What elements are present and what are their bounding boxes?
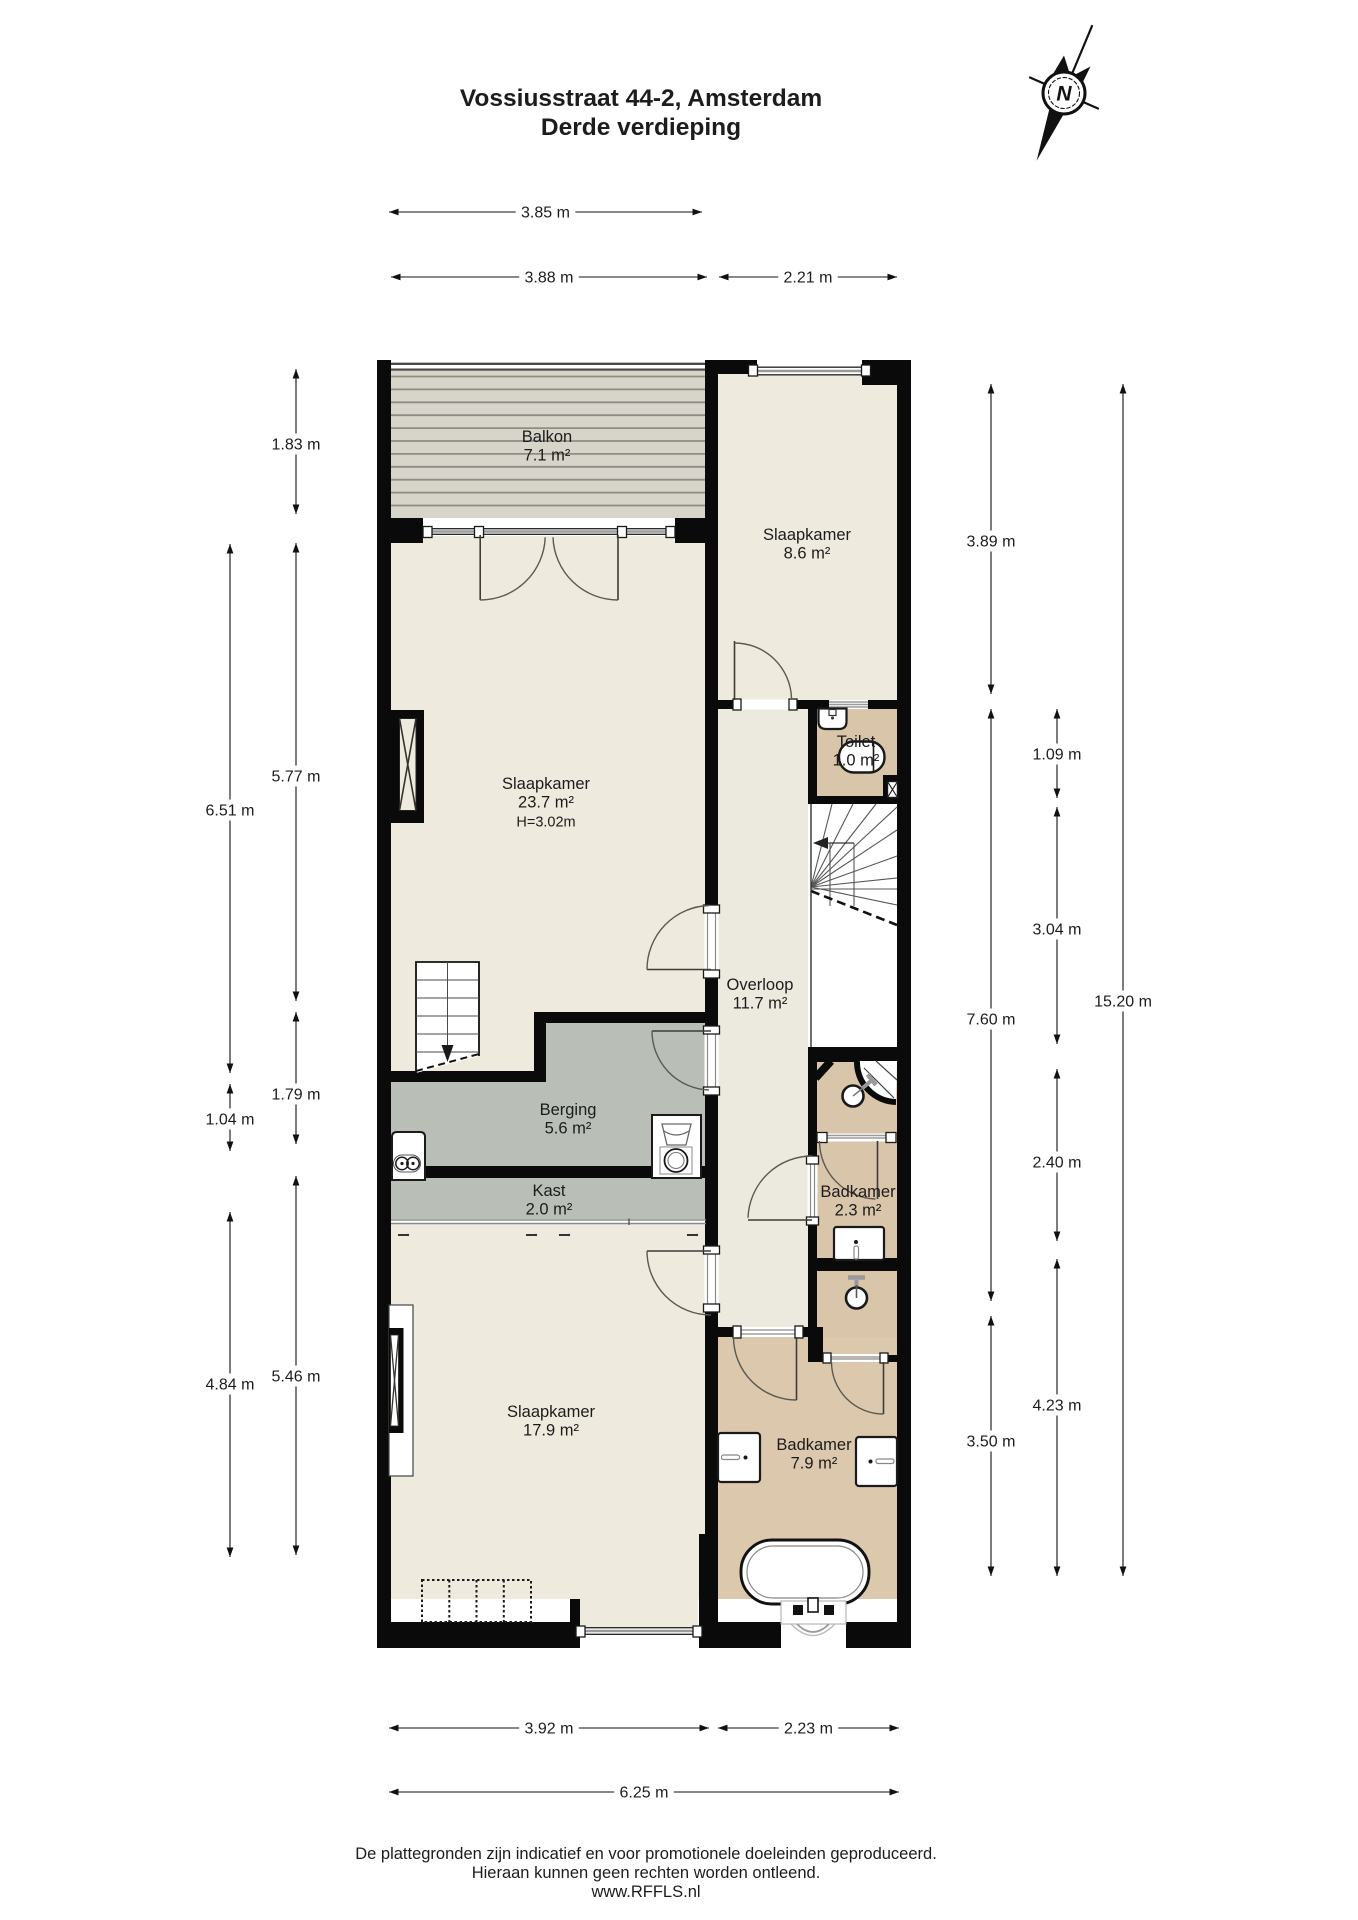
svg-text:8.6 m²: 8.6 m² [784, 545, 831, 563]
svg-text:N: N [1056, 83, 1072, 106]
svg-text:Kast: Kast [532, 1182, 565, 1200]
svg-text:1.09 m: 1.09 m [1033, 747, 1082, 764]
svg-text:15.20 m: 15.20 m [1094, 994, 1152, 1011]
svg-text:De plattegronden zijn indicati: De plattegronden zijn indicatief en voor… [355, 1845, 937, 1863]
svg-text:H=3.02m: H=3.02m [516, 815, 575, 831]
svg-text:7.9 m²: 7.9 m² [791, 1455, 838, 1473]
svg-text:7.1 m²: 7.1 m² [524, 447, 571, 465]
svg-text:5.46 m: 5.46 m [272, 1369, 321, 1386]
svg-text:2.3 m²: 2.3 m² [835, 1202, 882, 1220]
svg-text:Overloop: Overloop [727, 976, 794, 994]
svg-text:Slaapkamer: Slaapkamer [502, 775, 591, 793]
svg-text:7.60 m: 7.60 m [967, 1012, 1016, 1029]
svg-text:5.77 m: 5.77 m [272, 769, 321, 786]
svg-text:Slaapkamer: Slaapkamer [507, 1403, 596, 1421]
svg-text:2.0 m²: 2.0 m² [526, 1201, 573, 1219]
svg-text:23.7 m²: 23.7 m² [518, 794, 574, 812]
svg-text:Slaapkamer: Slaapkamer [763, 526, 852, 544]
svg-text:Badkamer: Badkamer [776, 1436, 852, 1454]
svg-text:Badkamer: Badkamer [820, 1183, 896, 1201]
svg-text:Balkon: Balkon [522, 428, 572, 446]
svg-text:3.92 m: 3.92 m [525, 1721, 574, 1738]
svg-text:Vossiusstraat 44-2, Amsterdam: Vossiusstraat 44-2, Amsterdam [460, 85, 822, 112]
svg-text:2.21 m: 2.21 m [784, 270, 833, 287]
svg-text:Toilet: Toilet [837, 733, 876, 751]
svg-text:Derde verdieping: Derde verdieping [541, 114, 741, 141]
svg-text:3.89 m: 3.89 m [967, 534, 1016, 551]
svg-text:3.50 m: 3.50 m [967, 1434, 1016, 1451]
svg-text:3.85 m: 3.85 m [521, 205, 570, 222]
svg-text:2.23 m: 2.23 m [784, 1721, 833, 1738]
svg-text:6.51 m: 6.51 m [206, 803, 255, 820]
svg-text:Berging: Berging [540, 1101, 597, 1119]
svg-text:3.04 m: 3.04 m [1033, 922, 1082, 939]
svg-text:1.83 m: 1.83 m [272, 437, 321, 454]
svg-text:www.RFFLS.nl: www.RFFLS.nl [590, 1883, 700, 1901]
svg-text:17.9 m²: 17.9 m² [523, 1422, 579, 1440]
svg-text:4.84 m: 4.84 m [206, 1377, 255, 1394]
svg-text:2.40 m: 2.40 m [1033, 1155, 1082, 1172]
svg-text:3.88 m: 3.88 m [525, 270, 574, 287]
svg-text:11.7 m²: 11.7 m² [733, 995, 788, 1013]
svg-text:1.04 m: 1.04 m [206, 1112, 255, 1129]
svg-text:1.79 m: 1.79 m [272, 1087, 321, 1104]
svg-text:5.6 m²: 5.6 m² [545, 1120, 592, 1138]
svg-text:4.23 m: 4.23 m [1033, 1398, 1082, 1415]
svg-text:Hieraan kunnen geen rechten wo: Hieraan kunnen geen rechten worden ontle… [472, 1864, 821, 1882]
svg-text:6.25 m: 6.25 m [620, 1785, 669, 1802]
svg-text:1.0 m²: 1.0 m² [833, 752, 880, 770]
